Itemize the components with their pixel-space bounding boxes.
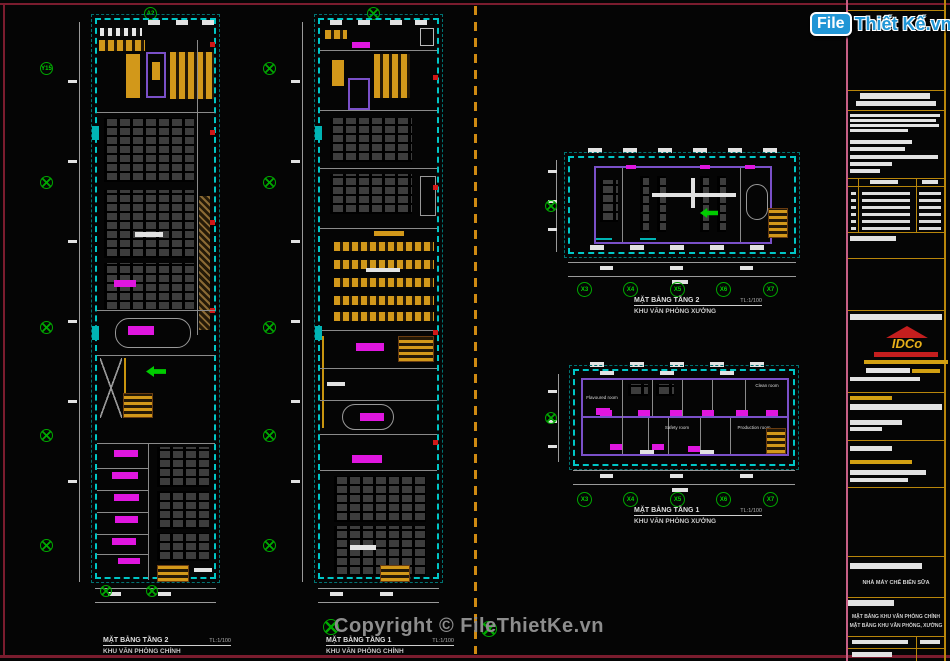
text-bar [850, 446, 892, 451]
column-mark [390, 20, 402, 25]
room-highlight [600, 410, 612, 416]
column-mark [670, 362, 684, 367]
room-highlight [702, 410, 714, 416]
text-bar [850, 155, 938, 159]
title-block-rule [848, 597, 944, 598]
column-mark [148, 20, 160, 25]
wall-line [668, 418, 669, 454]
plan-title: MẶT BẰNG TẦNG 1 [326, 637, 391, 644]
axis-marker [263, 539, 276, 552]
dimension-line [318, 588, 439, 589]
room-label-bar [374, 231, 404, 236]
dimension-line [302, 22, 303, 582]
axis-marker [40, 176, 53, 189]
column-mark [670, 245, 684, 250]
text-bar [920, 640, 940, 644]
axis-marker: X5 [670, 282, 685, 297]
plan-title-row: MẶT BẰNG TẦNG 1 TL:1/100 [326, 637, 454, 646]
wall-line [97, 490, 148, 491]
column-mark [590, 362, 604, 367]
dimension-text [291, 160, 300, 163]
text-bar [856, 101, 936, 106]
column-mark [330, 20, 342, 25]
room-label: Safety room [660, 426, 694, 431]
dimension-text [291, 80, 300, 83]
plan-subtitle: KHU VĂN PHÒNG XƯỞNG [634, 518, 762, 525]
title-block-rule [848, 556, 944, 557]
sheet-divider [474, 6, 477, 654]
stair-block [380, 565, 410, 582]
door-mark [720, 371, 734, 375]
text-bar [850, 377, 920, 381]
room-highlight [118, 558, 140, 564]
dimension-text [330, 592, 343, 596]
stair-rail [322, 336, 324, 428]
room-label-bar [135, 232, 163, 237]
column-mark [658, 148, 672, 153]
title-block-rule [848, 110, 944, 111]
title-block-rule [848, 636, 944, 637]
company-logo: IDCo [874, 336, 940, 350]
text-bar [850, 147, 905, 151]
plan-scale: TL:1/100 [740, 298, 762, 304]
column-mark [588, 148, 602, 153]
desk-grid [628, 384, 648, 396]
room-highlight [688, 446, 700, 452]
plan-scale: TL:1/100 [209, 638, 231, 644]
wall-accent [583, 416, 787, 418]
drawing-title-1: MẶT BẰNG KHU VĂN PHÒNG CHÍNH [848, 614, 944, 620]
text-bar [850, 169, 880, 173]
plan-title-row: MẶT BẰNG TẦNG 1 TL:1/100 [634, 507, 762, 516]
dimension-line [573, 484, 795, 485]
shaft-cell [92, 326, 99, 340]
wall-line [622, 168, 623, 242]
text-bar [912, 369, 940, 373]
stair-block [398, 336, 434, 362]
text-bar [852, 652, 892, 657]
axis-marker [263, 321, 276, 334]
title-block-edge [944, 0, 946, 661]
wall-line [700, 418, 701, 454]
dimension-line [568, 276, 796, 277]
wall-line [97, 310, 215, 311]
title-block-rule [848, 258, 944, 259]
plan-title-row: MẶT BẰNG TẦNG 2 TL:1/100 [103, 637, 231, 646]
desk-grid [656, 384, 674, 396]
column-mark [693, 148, 707, 153]
meeting-table [746, 184, 768, 220]
column-mark [415, 20, 427, 25]
column-mark [176, 20, 188, 25]
dimension-text [291, 480, 300, 483]
furniture-block [126, 54, 140, 98]
text-bar [852, 640, 908, 644]
wall-line [648, 418, 649, 454]
fixture [420, 28, 434, 46]
axis-marker [545, 412, 557, 424]
wall-line [97, 512, 148, 513]
desk-grid [157, 491, 209, 529]
wall-line [97, 468, 148, 469]
table-column [919, 188, 941, 230]
door-mark [640, 450, 654, 454]
text-bar [866, 368, 910, 373]
room-highlight [670, 410, 682, 416]
frame-left [3, 3, 5, 656]
wall-line [320, 400, 437, 401]
rack-row [700, 176, 709, 232]
wall-line [148, 443, 149, 580]
red-dot [433, 440, 438, 445]
dimension-text [68, 80, 77, 83]
axis-marker: X6 [716, 282, 731, 297]
door-mark [700, 450, 714, 454]
red-dot [210, 42, 215, 47]
room-highlight [114, 280, 136, 287]
text-bar [850, 314, 942, 320]
plan-label: MẶT BẰNG TẦNG 1 TL:1/100 KHU VĂN PHÒNG C… [326, 637, 454, 655]
title-block-rule [848, 310, 944, 311]
axis-marker [40, 321, 53, 334]
axis-marker [263, 62, 276, 75]
watermark: Copyright © FileThietKe.vn [334, 615, 604, 638]
table-header-bar [870, 180, 898, 184]
red-dot [433, 185, 438, 190]
wall-line [320, 50, 437, 51]
wall-line [320, 110, 437, 111]
dimension-text [291, 320, 300, 323]
plan-title-row: MẶT BẰNG TẦNG 2 TL:1/100 [634, 297, 762, 306]
plan-title: MẶT BẰNG TẦNG 2 [634, 297, 699, 304]
wall-line [320, 168, 437, 169]
room-highlight [112, 472, 138, 479]
text-bar [860, 93, 930, 99]
plan-scale: TL:1/100 [740, 508, 762, 514]
wall-line [652, 380, 653, 416]
red-dot [210, 220, 215, 225]
dimension-text [291, 400, 300, 403]
axis-marker: X4 [623, 282, 638, 297]
table-highlight [128, 326, 154, 335]
bench-table [691, 178, 695, 208]
wall-line [97, 355, 215, 356]
room-highlight [626, 165, 636, 169]
wall-line [320, 368, 437, 369]
furniture-block [325, 30, 347, 39]
axis-marker [263, 176, 276, 189]
plan-subtitle: KHU VĂN PHÒNG XƯỞNG [634, 308, 762, 315]
text-bar [850, 162, 892, 166]
column-mark [728, 148, 742, 153]
shaft-cell [92, 126, 99, 140]
text-bar [864, 360, 948, 364]
dimension-text [548, 390, 557, 393]
dimension-text [68, 240, 77, 243]
dimension-text [68, 320, 77, 323]
wall-line [320, 470, 437, 471]
cabinet-row [100, 28, 142, 36]
column-mark [750, 245, 764, 250]
revision-table-rule [848, 186, 944, 187]
text-bar [850, 563, 922, 569]
column-mark [763, 148, 777, 153]
furniture-block [170, 52, 214, 99]
axis-marker: X3 [577, 282, 592, 297]
door-mark [600, 371, 614, 375]
text-bar [850, 470, 926, 475]
column-mark [630, 245, 644, 250]
title-block-rule [848, 648, 944, 649]
plan-title: MẶT BẰNG TẦNG 1 [634, 507, 699, 514]
title-block-rule [848, 440, 944, 441]
text-bar [850, 404, 942, 410]
desk-grid [330, 174, 412, 214]
column-mark [750, 362, 764, 367]
column-mark [202, 20, 214, 25]
furniture-block [152, 62, 160, 80]
axis-marker [146, 585, 158, 597]
wall-line [740, 168, 741, 242]
desk-grid [104, 263, 194, 311]
rack-row [657, 176, 666, 232]
rack-row [717, 176, 726, 232]
wall-line [97, 443, 215, 444]
axis-marker: X7 [763, 282, 778, 297]
axis-marker: Y15 [40, 62, 53, 75]
wall-line [730, 418, 731, 454]
title-block-rule [848, 10, 944, 11]
canteen-table [334, 312, 434, 321]
table-highlight [360, 413, 384, 421]
stair-block [768, 208, 788, 238]
red-dot [433, 75, 438, 80]
room-highlight [352, 42, 370, 48]
title-block-edge [846, 0, 848, 661]
red-dot [433, 330, 438, 335]
wall-line [622, 380, 623, 454]
axis-marker [263, 429, 276, 442]
dimension-text [68, 400, 77, 403]
plan-subtitle: KHU VĂN PHÒNG CHÍNH [326, 648, 454, 655]
frame-top [0, 3, 950, 5]
room-label: Flavoured room [584, 396, 620, 401]
room-highlight [115, 516, 138, 523]
column-mark [590, 245, 604, 250]
column-mark [623, 148, 637, 153]
dimension-text [291, 240, 300, 243]
dimension-text [670, 266, 683, 270]
room-label: Clean room [748, 384, 786, 389]
desk-grid [104, 118, 194, 182]
title-block-rule [848, 487, 944, 488]
room-highlight [356, 343, 384, 351]
room-label-bar [327, 382, 345, 386]
wall-line [97, 554, 148, 555]
pantry-room [348, 78, 370, 110]
dimension-text [548, 228, 557, 231]
plan-title: MẶT BẰNG TẦNG 2 [103, 637, 168, 644]
plan-label: MẶT BẰNG TẦNG 2 TL:1/100 KHU VĂN PHÒNG X… [634, 297, 762, 315]
dimension-text [670, 474, 683, 478]
column-mark [710, 362, 724, 367]
room-highlight [112, 538, 136, 545]
rack-row [640, 176, 649, 232]
text-bar [850, 236, 896, 241]
stair-block [123, 393, 153, 418]
door-mark [194, 568, 212, 572]
text-bar [848, 600, 894, 606]
shaft-cell [315, 326, 322, 340]
text-bar [850, 460, 912, 464]
desk-grid [600, 180, 618, 222]
text-bar [850, 119, 936, 122]
table-header-bar [922, 180, 938, 184]
project-name: NHÀ MÁY CHẾ BIẾN SỮA [848, 580, 944, 586]
dimension-text [740, 474, 753, 478]
furniture-block [374, 54, 410, 98]
stair-block [766, 428, 786, 454]
wall-line [197, 40, 198, 335]
axis-marker: X4 [623, 492, 638, 507]
axis-marker: X7 [763, 492, 778, 507]
room-label-bar [366, 268, 400, 272]
text-bar [850, 124, 939, 127]
plan-subtitle: KHU VĂN PHÒNG CHÍNH [103, 648, 231, 655]
desk-grid [157, 533, 209, 561]
column-mark [358, 20, 370, 25]
dimension-text [548, 445, 557, 448]
dimension-text [68, 160, 77, 163]
dimension-text [600, 266, 613, 270]
frame-bottom [0, 655, 950, 658]
title-block-rule [848, 392, 944, 393]
text-bar [850, 129, 908, 132]
canteen-table [334, 296, 434, 305]
text-bar [850, 140, 912, 144]
desk-grid [330, 118, 412, 162]
shaft-cell [596, 238, 612, 240]
room-highlight [638, 410, 650, 416]
axis-marker: X5 [670, 492, 685, 507]
text-bar [850, 478, 908, 482]
company-logo-band [874, 352, 938, 357]
text-bar [850, 396, 892, 400]
desk-grid [334, 476, 426, 522]
shaft-cell [640, 238, 656, 240]
axis-marker [40, 539, 53, 552]
room-highlight [736, 410, 748, 416]
wall-line [320, 434, 437, 435]
dimension-line [318, 602, 439, 603]
revision-table-rule [848, 178, 944, 179]
furniture-block [332, 60, 344, 86]
title-block-rule [848, 232, 944, 233]
wc-fixtures [420, 176, 436, 216]
room-highlight [114, 450, 138, 457]
wall-line [320, 330, 437, 331]
canteen-table [334, 278, 434, 287]
axis-marker: X3 [577, 492, 592, 507]
wall-line [320, 228, 437, 229]
room-highlight [745, 165, 755, 169]
shaft-cell [315, 126, 322, 140]
furniture-block [99, 40, 145, 51]
plan-label: MẶT BẰNG TẦNG 2 TL:1/100 KHU VĂN PHÒNG C… [103, 637, 231, 655]
site-logo: File Thiết Kế.vn [810, 12, 950, 36]
drawing-title-2: MẶT BẰNG KHU VĂN PHÒNG, XƯỞNG [848, 623, 944, 629]
wall-line [682, 380, 683, 416]
dimension-text [158, 592, 171, 596]
door-mark [660, 371, 674, 375]
axis-marker [100, 585, 112, 597]
dimension-line [573, 470, 795, 471]
room-highlight [352, 455, 382, 463]
site-logo-file-badge: File [810, 12, 852, 36]
dimension-text [548, 170, 557, 173]
text-bar [850, 427, 882, 431]
room-highlight [700, 165, 710, 169]
axis-marker [40, 429, 53, 442]
red-dot [210, 130, 215, 135]
desk-grid [104, 190, 194, 258]
dimension-line [568, 262, 796, 263]
table-column [862, 188, 910, 230]
axis-marker: X6 [716, 492, 731, 507]
plan-label: MẶT BẰNG TẦNG 1 TL:1/100 KHU VĂN PHÒNG X… [634, 507, 762, 525]
text-bar [850, 420, 902, 425]
canteen-table [334, 242, 434, 251]
dimension-text [600, 474, 613, 478]
dimension-text [68, 480, 77, 483]
dimension-text [740, 266, 753, 270]
cad-sheet: A2 Y15 [0, 0, 950, 661]
dimension-line [79, 22, 80, 582]
text-bar [850, 114, 940, 117]
escalator [100, 358, 122, 418]
column-mark [630, 362, 644, 367]
column-mark [710, 245, 724, 250]
wall-line [97, 534, 148, 535]
dimension-line [95, 602, 216, 603]
room-highlight [610, 444, 622, 450]
dimension-text [380, 592, 393, 596]
site-logo-text: Thiết Kế.vn [855, 14, 950, 35]
dimension-line [558, 374, 559, 462]
stair-block [157, 565, 189, 582]
desk-grid [157, 447, 209, 487]
table-column [851, 188, 856, 230]
room-highlight [766, 410, 778, 416]
title-block-rule [848, 90, 944, 91]
room-label-bar [350, 545, 376, 550]
plan-scale: TL:1/100 [432, 638, 454, 644]
room-highlight [114, 494, 139, 501]
axis-marker [545, 200, 557, 212]
